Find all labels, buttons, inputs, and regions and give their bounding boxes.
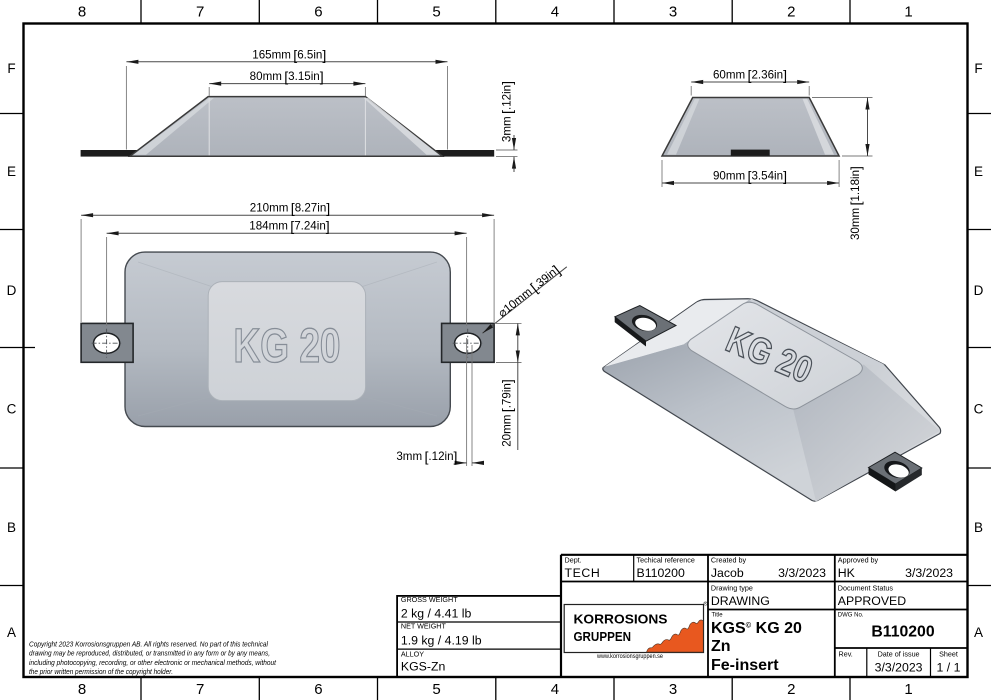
svg-text:NET WEIGHT: NET WEIGHT: [401, 622, 447, 631]
svg-text:B: B: [7, 520, 16, 535]
svg-text:®: ®: [703, 601, 708, 608]
svg-text:TECH: TECH: [565, 566, 601, 580]
svg-text:C: C: [974, 402, 984, 417]
svg-text:3/3/2023: 3/3/2023: [905, 566, 953, 580]
svg-text:GRUPPEN: GRUPPEN: [574, 629, 632, 644]
svg-text:6: 6: [314, 4, 322, 21]
svg-text:Sheet: Sheet: [939, 650, 958, 659]
svg-text:Dept.: Dept.: [565, 556, 582, 565]
svg-text:GROSS WEIGHT: GROSS WEIGHT: [401, 595, 458, 604]
svg-text:1 / 1: 1 / 1: [937, 661, 961, 675]
svg-text:KORROSIONS: KORROSIONS: [574, 612, 668, 627]
svg-text:7: 7: [196, 681, 204, 698]
svg-text:D: D: [974, 283, 984, 298]
svg-text:the prior written permission o: the prior written permission of the copy…: [29, 667, 173, 676]
svg-text:B110200: B110200: [871, 624, 934, 641]
svg-text:www.korrosionsgruppen.se: www.korrosionsgruppen.se: [596, 654, 664, 660]
svg-text:HK: HK: [838, 566, 856, 580]
svg-text:Date of issue: Date of issue: [878, 650, 920, 659]
svg-text:KGS-Zn: KGS-Zn: [401, 660, 446, 674]
svg-text:D: D: [7, 283, 17, 298]
svg-text:Zn: Zn: [711, 638, 731, 655]
svg-text:2: 2: [787, 681, 795, 698]
svg-text:Document Status: Document Status: [838, 584, 894, 593]
svg-text:8: 8: [78, 4, 86, 21]
svg-text:DWG No.: DWG No.: [838, 613, 864, 619]
svg-text:ALLOY: ALLOY: [401, 650, 424, 659]
svg-text:1: 1: [904, 4, 912, 21]
svg-text:F: F: [974, 61, 982, 76]
svg-text:5: 5: [432, 4, 440, 21]
svg-text:Rev.: Rev.: [839, 650, 853, 659]
svg-text:B: B: [974, 520, 983, 535]
svg-text:8: 8: [78, 681, 86, 698]
svg-text:3/3/2023: 3/3/2023: [875, 661, 923, 675]
svg-text:6: 6: [314, 681, 322, 698]
svg-text:1.9 kg / 4.19 lb: 1.9 kg / 4.19 lb: [401, 634, 482, 648]
svg-text:Jacob: Jacob: [711, 566, 744, 580]
svg-text:7: 7: [196, 4, 204, 21]
svg-text:3: 3: [669, 4, 677, 21]
svg-text:Created by: Created by: [711, 556, 747, 565]
svg-text:Fe-insert: Fe-insert: [711, 657, 779, 674]
svg-text:F: F: [7, 61, 15, 76]
svg-text:KG 20: KG 20: [234, 320, 341, 373]
svg-text:DRAWING: DRAWING: [711, 594, 770, 608]
svg-text:1: 1: [904, 681, 912, 698]
svg-text:APPROVED: APPROVED: [838, 594, 906, 608]
svg-text:C: C: [7, 402, 17, 417]
svg-text:4: 4: [551, 4, 559, 21]
svg-text:E: E: [974, 164, 983, 179]
svg-text:Copyright 2023 Korrosionsgrupp: Copyright 2023 Korrosionsgruppen AB. All…: [29, 640, 268, 649]
svg-text:Techical reference: Techical reference: [637, 556, 695, 565]
svg-text:4: 4: [551, 681, 559, 698]
svg-text:drawing may be reproduced, dis: drawing may be reproduced, distributed, …: [29, 649, 270, 658]
svg-text:2 kg / 4.41 lb: 2 kg / 4.41 lb: [401, 607, 472, 621]
svg-text:A: A: [974, 625, 983, 640]
svg-text:Title: Title: [712, 613, 724, 619]
svg-text:B110200: B110200: [637, 566, 685, 580]
svg-text:A: A: [7, 625, 16, 640]
svg-text:Approved by: Approved by: [838, 556, 879, 565]
svg-text:KGS© KG 20: KGS© KG 20: [711, 620, 802, 637]
svg-text:including photocopying, record: including photocopying, recording, or ot…: [29, 658, 277, 667]
svg-text:Drawing type: Drawing type: [711, 584, 753, 593]
svg-text:E: E: [7, 164, 16, 179]
svg-text:3: 3: [669, 681, 677, 698]
svg-text:2: 2: [787, 4, 795, 21]
svg-text:3/3/2023: 3/3/2023: [778, 566, 826, 580]
svg-text:5: 5: [432, 681, 440, 698]
